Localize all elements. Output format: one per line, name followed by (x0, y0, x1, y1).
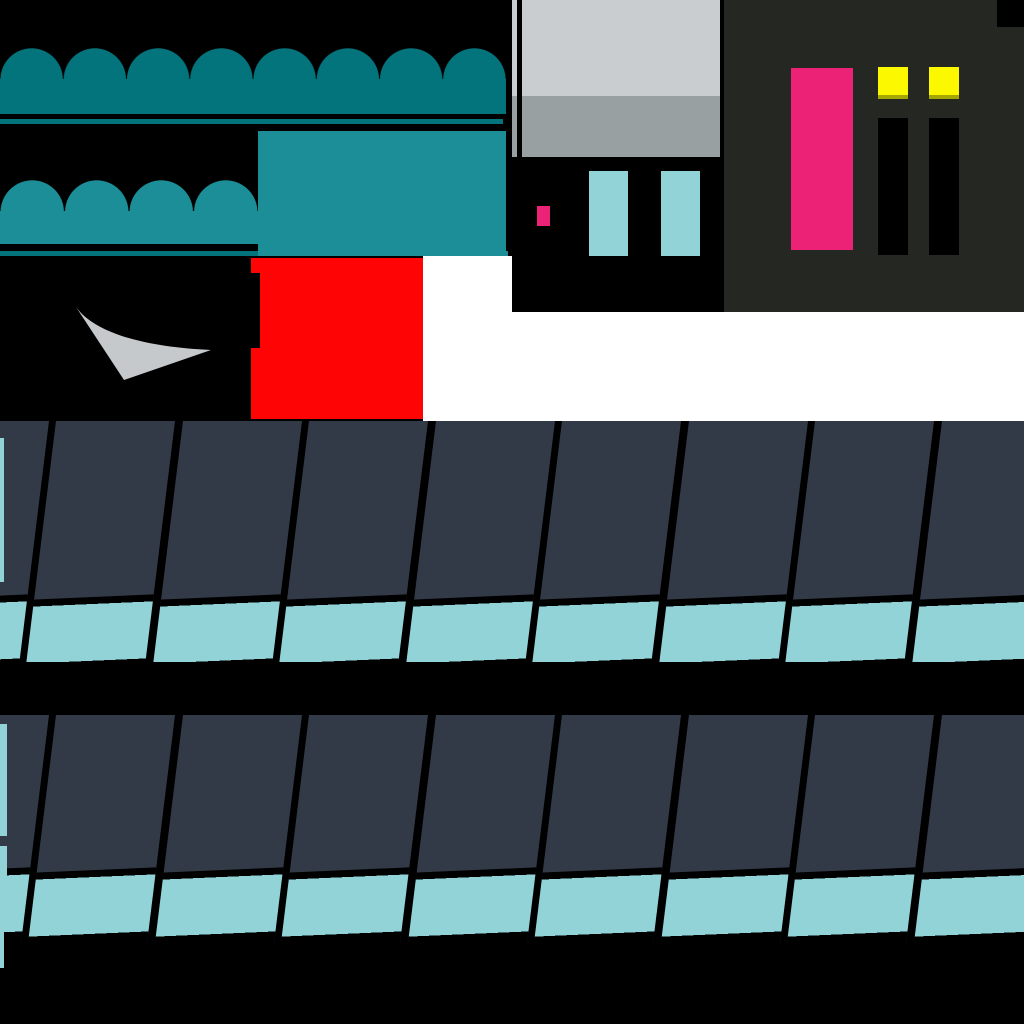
roof-panel (154, 715, 301, 945)
roof-panel (26, 421, 175, 662)
roof-panel (913, 715, 1024, 945)
roof-panel-eave (26, 593, 175, 662)
facade-door (791, 68, 853, 250)
awning-small-base (0, 211, 258, 244)
roof-panel-eave (660, 866, 807, 945)
canopy-bar-2-right (258, 251, 508, 256)
roof-panel-eave (281, 866, 428, 945)
roof-panel (534, 715, 681, 945)
facade-window-lit-left (878, 67, 908, 99)
roof-panel (787, 715, 934, 945)
awning-large-base (0, 79, 506, 114)
window-mullion (517, 0, 522, 157)
canopy-bar-1 (0, 119, 503, 124)
roof-panel (785, 421, 934, 662)
roof-panel (407, 715, 554, 945)
shutter-right-sprite (661, 171, 700, 256)
roof-panel (281, 715, 428, 945)
roof-panel (28, 715, 175, 945)
shutter-left-sprite (589, 171, 628, 256)
roof-panel-eave (912, 593, 1024, 662)
awning-small-sprite (0, 180, 258, 244)
facade-window-dark-left (878, 118, 908, 255)
roof-panel-eave (785, 593, 934, 662)
awning-large-sprite (0, 48, 506, 114)
roof-panel (279, 421, 428, 662)
roof-panel-eave (913, 866, 1024, 945)
sail-swoosh-sprite (60, 300, 220, 385)
roof-panel (659, 421, 808, 662)
canopy-panel-sprite (258, 131, 506, 256)
red-block-notch (251, 273, 260, 348)
roof-panel-eave (659, 593, 808, 662)
roof-panel-eave (787, 866, 934, 945)
edge-sliver (0, 930, 4, 968)
roof-panel-eave (154, 866, 301, 945)
roof-panel-eave (532, 593, 681, 662)
roof-panel-eave (279, 593, 428, 662)
facade-window-lit-right (929, 67, 959, 99)
roof-panel (532, 421, 681, 662)
roof-panel (153, 421, 302, 662)
roof-panel-eave (407, 866, 554, 945)
pink-marker-sprite (537, 206, 550, 226)
roof-row-2 (0, 715, 1024, 945)
edge-sliver (0, 438, 4, 582)
roof-panel-eave (534, 866, 681, 945)
edge-sliver (0, 724, 7, 836)
facade-window-dark-right (929, 118, 959, 255)
roof-panel (660, 715, 807, 945)
sail-swoosh-shape (60, 300, 220, 385)
building-facade-sprite (724, 0, 1024, 312)
roof-panel-eave (153, 593, 302, 662)
window-glass-upper (512, 0, 720, 96)
roof-panel-eave (28, 866, 175, 945)
window-glass-lower (512, 96, 720, 157)
facade-corner-notch (997, 0, 1024, 27)
roof-row-1 (0, 421, 1024, 662)
texture-atlas-canvas (0, 0, 1024, 1024)
canopy-bar-2-left (0, 251, 258, 256)
roof-panel (406, 421, 555, 662)
red-block-sprite (251, 258, 423, 419)
edge-sliver (0, 846, 7, 918)
roof-panel-eave (406, 593, 555, 662)
